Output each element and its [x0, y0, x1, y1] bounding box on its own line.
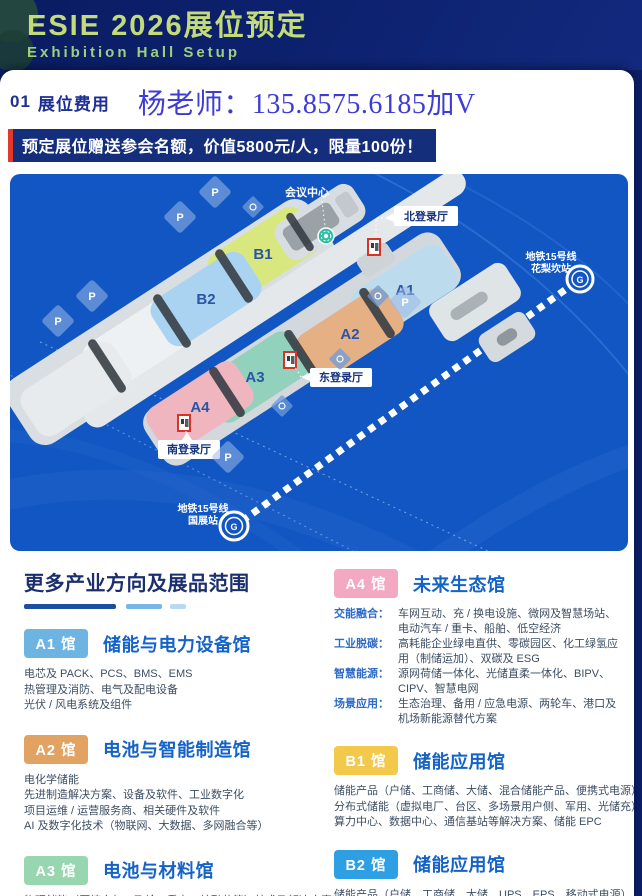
hall-section-a2: A2 馆 电池与智能制造馆 电化学储能 先进制造解决方案、设备及软件、工业数字化…: [24, 735, 318, 835]
entry-text: 生态治理、备用 / 应急电源、两轮车、港口及机场新能源替代方案: [398, 697, 626, 727]
exhibit-line: 光伏 / 风电系统及组件: [24, 698, 318, 714]
content-card: 01 展位费用 杨老师：135.8575.6185加V 预定展位赠送参会名额，价…: [0, 70, 634, 896]
north-door-icon: [368, 239, 380, 255]
hall-title: 储能应用馆: [413, 748, 506, 774]
section-label: 展位费用: [38, 90, 110, 115]
exhibit-line: 项目运维 / 运营服务商、相关硬件及软件: [24, 804, 318, 820]
contact-phone: 杨老师：135.8575.6185加V: [138, 82, 476, 122]
svg-text:B1: B1: [253, 246, 272, 263]
svg-text:东登录厅: 东登录厅: [319, 370, 363, 384]
exhibit-entry: 工业脱碳： 高耗能企业绿电直供、零碳园区、化工绿氢应用（制储运加）、双碳及 ES…: [334, 637, 626, 667]
promo-banner: 预定展位赠送参会名额，价值5800元/人，限量100份！: [8, 129, 436, 162]
metro-station-label: 国展站: [188, 514, 218, 527]
exhibit-line: 电芯及 PACK、PCS、BMS、EMS: [24, 667, 318, 683]
exhibit-line: 储能产品（户储、工商储、大储、UPS、EPS、移动式电源）: [334, 888, 626, 896]
conference-label: 会议中心: [285, 185, 329, 199]
exhibit-entry: 场景应用： 生态治理、备用 / 应急电源、两轮车、港口及机场新能源替代方案: [334, 697, 626, 727]
hall-title: 储能应用馆: [413, 851, 506, 877]
hall-section-a4: A4 馆 未来生态馆 交能融合： 车网互动、充 / 换电设施、微网及智慧场站、电…: [334, 569, 626, 727]
entry-label: 场景应用：: [334, 697, 398, 727]
page-subtitle: Exhibition Hall Setup: [27, 44, 642, 61]
venue-map: 安翔街 G 地铁15号线 花梨坎站 G 地铁15号线 国展站: [10, 174, 628, 551]
svg-text:P: P: [88, 291, 95, 303]
catalog-left-column: 更多产业方向及展品范围 A1 馆 储能与电力设备馆 电芯及 PACK、PCS、B…: [24, 567, 318, 896]
svg-text:G: G: [576, 275, 583, 285]
hall-title: 储能与电力设备馆: [103, 631, 251, 657]
catalog-section: 更多产业方向及展品范围 A1 馆 储能与电力设备馆 电芯及 PACK、PCS、B…: [0, 551, 634, 896]
exhibit-line: AI 及数字化技术（物联网、大数据、多网融合等）: [24, 819, 318, 835]
svg-text:B2: B2: [196, 291, 215, 308]
svg-text:南登录厅: 南登录厅: [167, 442, 211, 456]
svg-text:P: P: [211, 187, 218, 199]
exhibit-line: 分布式储能（虚拟电厂、台区、多场景用户侧、军用、光储充）: [334, 800, 626, 816]
hall-badge: B1 馆: [334, 746, 398, 775]
svg-text:A2: A2: [340, 326, 359, 343]
hall-badge: A4 馆: [334, 569, 398, 598]
conference-pin-icon: [318, 228, 334, 244]
entry-label: 工业脱碳：: [334, 637, 398, 667]
hall-section-b2: B2 馆 储能应用馆 储能产品（户储、工商储、大储、UPS、EPS、移动式电源）…: [334, 850, 626, 896]
booth-fee-row: 01 展位费用 杨老师：135.8575.6185加V: [0, 70, 634, 124]
exhibit-line: 先进制造解决方案、设备及软件、工业数字化: [24, 788, 318, 804]
venue-map-svg: 安翔街 G 地铁15号线 花梨坎站 G 地铁15号线 国展站: [10, 174, 628, 551]
entry-text: 车网互动、充 / 换电设施、微网及智慧场站、电动汽车 / 重卡、船舶、低空经济: [398, 607, 626, 637]
svg-text:G: G: [230, 522, 237, 532]
entry-label: 交能融合：: [334, 607, 398, 637]
exhibit-line: 热管理及消防、电气及配电设备: [24, 683, 318, 699]
svg-text:北登录厅: 北登录厅: [404, 209, 448, 223]
south-door-icon: [178, 415, 190, 431]
metro-station-label: 地铁15号线: [177, 502, 228, 515]
exhibit-line: 电化学储能: [24, 773, 318, 789]
svg-text:P: P: [224, 452, 231, 464]
catalog-heading: 更多产业方向及展品范围: [24, 567, 318, 596]
hall-badge: A1 馆: [24, 629, 88, 658]
exhibit-line: 算力中心、数据中心、通信基站等解决方案、储能 EPC: [334, 815, 626, 831]
page-header: ESIE 2026展位预定 Exhibition Hall Setup: [0, 0, 642, 70]
svg-text:P: P: [401, 297, 408, 309]
svg-text:A3: A3: [245, 369, 264, 386]
svg-text:P: P: [54, 316, 61, 328]
svg-text:A4: A4: [190, 399, 210, 416]
hall-section-a3: A3 馆 电池与材料馆 物理储能（压缩空气、飞轮、重力、熔融盐等）技术及解决方案…: [24, 856, 318, 896]
hall-badge: A3 馆: [24, 856, 88, 885]
heading-underline: [24, 604, 318, 609]
exhibit-entry: 交能融合： 车网互动、充 / 换电设施、微网及智慧场站、电动汽车 / 重卡、船舶…: [334, 607, 626, 637]
hall-section-b1: B1 馆 储能应用馆 储能产品（户储、工商储、大储、混合储能产品、便携式电源） …: [334, 746, 626, 831]
hall-section-a1: A1 馆 储能与电力设备馆 电芯及 PACK、PCS、BMS、EMS 热管理及消…: [24, 629, 318, 714]
metro-station-label: 地铁15号线: [525, 250, 576, 263]
metro-station-label: 花梨坎站: [531, 262, 571, 275]
hall-title: 电池与智能制造馆: [103, 736, 251, 762]
hall-badge: B2 馆: [334, 850, 398, 879]
hall-title: 未来生态馆: [413, 571, 506, 597]
metro-logo-icon: G: [220, 512, 248, 540]
entry-text: 高耗能企业绿电直供、零碳园区、化工绿氢应用（制储运加）、双碳及 ESG: [398, 637, 626, 667]
hall-badge: A2 馆: [24, 735, 88, 764]
hall-title: 电池与材料馆: [103, 857, 214, 883]
promo-page: { "page": { "bg": "#0b1e66", "map_blue":…: [0, 0, 642, 896]
exhibit-entry: 智慧能源： 源网荷储一体化、光储直柔一体化、BIPV、CIPV、智慧电网: [334, 667, 626, 697]
page-title: ESIE 2026展位预定: [27, 11, 642, 41]
east-door-icon: [284, 352, 296, 368]
catalog-right-column: A4 馆 未来生态馆 交能融合： 车网互动、充 / 换电设施、微网及智慧场站、电…: [334, 567, 626, 896]
section-number: 01: [10, 92, 31, 112]
entry-label: 智慧能源：: [334, 667, 398, 697]
exhibit-line: 储能产品（户储、工商储、大储、混合储能产品、便携式电源）: [334, 784, 626, 800]
entry-text: 源网荷储一体化、光储直柔一体化、BIPV、CIPV、智慧电网: [398, 667, 626, 697]
svg-text:P: P: [176, 212, 183, 224]
